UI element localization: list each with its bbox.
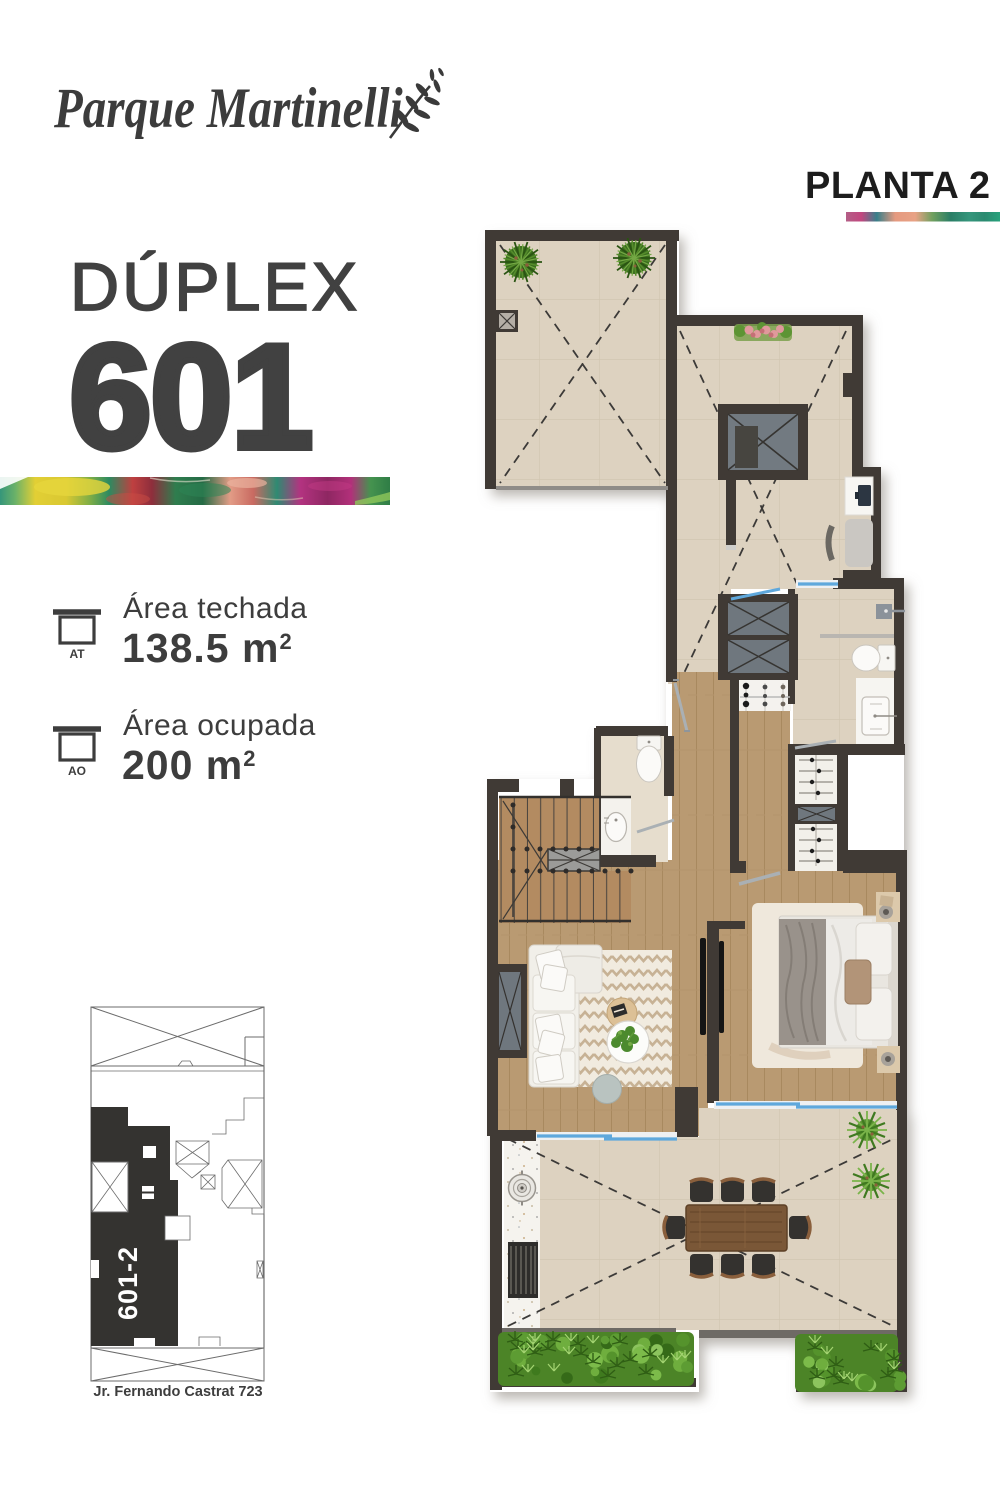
svg-text:AO: AO — [68, 764, 86, 778]
svg-text:601-2: 601-2 — [113, 1246, 143, 1320]
svg-text:AT: AT — [69, 647, 85, 661]
